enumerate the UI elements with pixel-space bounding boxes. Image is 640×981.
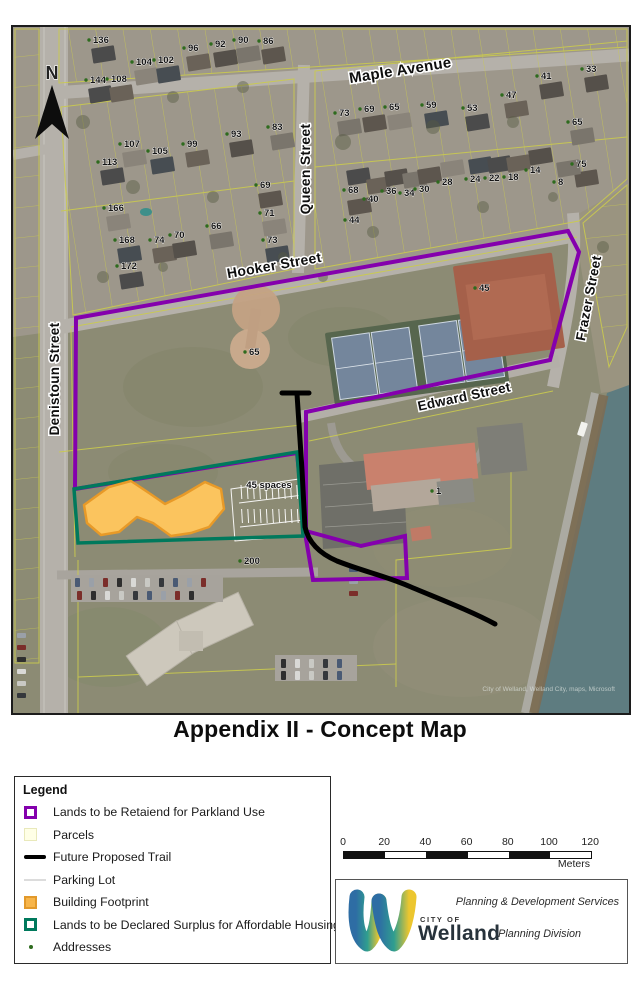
imagery-attribution: City of Welland, Welland City, maps, Mic… bbox=[482, 686, 615, 693]
address-dot bbox=[358, 107, 361, 110]
tree-canopy bbox=[167, 91, 179, 103]
tree-canopy bbox=[477, 201, 489, 213]
address-label: 108 bbox=[111, 74, 127, 85]
address-label: 14 bbox=[530, 165, 541, 176]
address-label: 107 bbox=[124, 139, 140, 150]
address-dot bbox=[570, 162, 573, 165]
tree-canopy bbox=[597, 241, 609, 253]
address-dot bbox=[115, 264, 118, 267]
parked-car bbox=[145, 578, 150, 587]
address-label: 93 bbox=[231, 129, 242, 140]
parked-car bbox=[295, 671, 300, 680]
logo-dept-label: Planning & Development Services bbox=[456, 896, 619, 908]
address-label: 86 bbox=[263, 36, 274, 47]
legend: Legend Lands to be Retaiend for Parkland… bbox=[14, 776, 331, 964]
address-dot bbox=[152, 58, 155, 61]
address-dot bbox=[209, 42, 212, 45]
scale-bar: 0 20 40 60 80 100 120 Meters bbox=[343, 836, 603, 859]
parked-car bbox=[323, 659, 328, 668]
address-label: 65 bbox=[249, 347, 260, 358]
address-label: 65 bbox=[389, 102, 400, 113]
address-label: 65 bbox=[572, 117, 583, 128]
tree-canopy bbox=[367, 226, 379, 238]
address-label: 66 bbox=[211, 221, 222, 232]
address-dot bbox=[258, 211, 261, 214]
parked-car bbox=[281, 671, 286, 680]
legend-item-parcels: Parcels bbox=[23, 824, 322, 847]
tree-canopy bbox=[335, 134, 351, 150]
parked-car bbox=[187, 578, 192, 587]
address-dot bbox=[168, 233, 171, 236]
parked-car bbox=[119, 591, 124, 600]
parkland-swatch bbox=[23, 806, 53, 819]
address-dot bbox=[461, 106, 464, 109]
address-dot bbox=[535, 74, 538, 77]
parked-car bbox=[337, 671, 342, 680]
address-label: 59 bbox=[426, 100, 437, 111]
parked-car bbox=[189, 591, 194, 600]
address-label: 69 bbox=[364, 104, 375, 115]
address-label: 102 bbox=[158, 55, 174, 66]
legend-header: Legend bbox=[23, 783, 322, 797]
address-label: 53 bbox=[467, 103, 478, 114]
tree-canopy bbox=[548, 192, 558, 202]
aerial-map: 45 spaces Maple AvenueQueen StreetHooker… bbox=[13, 27, 629, 713]
address-dot bbox=[254, 183, 257, 186]
address-label: 18 bbox=[508, 172, 519, 183]
address-dot bbox=[118, 142, 121, 145]
parked-car bbox=[17, 693, 26, 698]
tree-canopy bbox=[507, 116, 519, 128]
address-dot bbox=[464, 177, 467, 180]
parked-car bbox=[295, 659, 300, 668]
address-label: 36 bbox=[386, 186, 397, 197]
address-dot bbox=[261, 238, 264, 241]
legend-item-building: Building Footprint bbox=[23, 891, 322, 914]
page-title: Appendix II - Concept Map bbox=[0, 716, 640, 743]
address-label: 113 bbox=[102, 157, 117, 168]
address-label: 90 bbox=[238, 35, 249, 46]
parked-car bbox=[349, 591, 358, 596]
address-dot bbox=[84, 78, 87, 81]
building-swatch bbox=[23, 896, 53, 909]
address-dot bbox=[266, 125, 269, 128]
tree-canopy bbox=[97, 271, 109, 283]
parked-car bbox=[77, 591, 82, 600]
tree-canopy bbox=[426, 120, 440, 134]
surplus-swatch bbox=[23, 918, 53, 931]
address-dot bbox=[580, 67, 583, 70]
page: { "page": { "title": "Appendix II - Conc… bbox=[0, 0, 640, 981]
parked-car bbox=[147, 591, 152, 600]
scale-tick-labels: 0 20 40 60 80 100 120 bbox=[343, 836, 603, 849]
address-label: 1 bbox=[436, 486, 442, 497]
parked-car bbox=[17, 669, 26, 674]
address-label: 144 bbox=[90, 75, 107, 86]
parked-car bbox=[105, 591, 110, 600]
legend-item-addresses: Addresses bbox=[23, 936, 322, 959]
parked-car bbox=[337, 659, 342, 668]
address-dot bbox=[524, 168, 527, 171]
address-dot bbox=[146, 149, 149, 152]
address-dot bbox=[257, 39, 260, 42]
address-dot bbox=[483, 176, 486, 179]
address-dot bbox=[362, 197, 365, 200]
address-label: 47 bbox=[506, 90, 517, 101]
address-dot bbox=[148, 238, 151, 241]
address-label: 33 bbox=[586, 64, 597, 75]
legend-item-surplus: Lands to be Declared Surplus for Afforda… bbox=[23, 914, 322, 937]
address-label: 166 bbox=[108, 203, 124, 214]
tree-canopy bbox=[76, 115, 90, 129]
address-label: 73 bbox=[339, 108, 350, 119]
logo-welland-label: Welland bbox=[418, 922, 500, 946]
address-label: 74 bbox=[154, 235, 165, 246]
parked-car bbox=[17, 681, 26, 686]
trail-swatch bbox=[23, 855, 53, 859]
address-label: 96 bbox=[188, 43, 199, 54]
address-label: 68 bbox=[348, 185, 359, 196]
parked-car bbox=[201, 578, 206, 587]
svg-text:N: N bbox=[46, 63, 59, 83]
parked-car bbox=[17, 645, 26, 650]
address-label: 105 bbox=[152, 146, 169, 157]
parked-car bbox=[117, 578, 122, 587]
parked-car bbox=[103, 578, 108, 587]
parked-car bbox=[309, 659, 314, 668]
legend-item-parking: Parking Lot bbox=[23, 869, 322, 892]
address-dot bbox=[566, 120, 569, 123]
logo-division-label: Planning Division bbox=[498, 928, 581, 940]
address-label: 24 bbox=[470, 174, 481, 185]
street-label: Queen Street bbox=[297, 124, 313, 215]
tree-canopy bbox=[158, 262, 168, 272]
address-dot bbox=[96, 160, 99, 163]
address-dot bbox=[87, 38, 90, 41]
address-dot bbox=[343, 218, 346, 221]
address-label: 8 bbox=[558, 177, 563, 188]
address-label: 136 bbox=[93, 35, 109, 46]
parked-car bbox=[309, 671, 314, 680]
address-dot bbox=[181, 142, 184, 145]
parked-car bbox=[131, 578, 136, 587]
parked-car bbox=[91, 591, 96, 600]
address-dot bbox=[182, 46, 185, 49]
legend-item-parkland: Lands to be Retaiend for Parkland Use bbox=[23, 801, 322, 824]
parked-car bbox=[159, 578, 164, 587]
parked-car bbox=[173, 578, 178, 587]
parked-car bbox=[17, 633, 26, 638]
address-dot bbox=[502, 175, 505, 178]
tree-canopy bbox=[126, 180, 140, 194]
address-label: 41 bbox=[541, 71, 552, 82]
address-dot bbox=[380, 189, 383, 192]
address-dot bbox=[473, 286, 476, 289]
address-label: 70 bbox=[174, 230, 185, 241]
address-label: 44 bbox=[349, 215, 360, 226]
parked-car bbox=[161, 591, 166, 600]
address-dot bbox=[333, 111, 336, 114]
address-dot bbox=[500, 93, 503, 96]
address-dot bbox=[225, 132, 228, 135]
address-label: 30 bbox=[419, 184, 430, 195]
scale-unit-label: Meters bbox=[343, 858, 590, 870]
address-dot bbox=[413, 187, 416, 190]
address-label: 75 bbox=[576, 159, 587, 170]
welland-w-logo-icon bbox=[346, 888, 418, 952]
parked-car bbox=[323, 671, 328, 680]
parcels-swatch bbox=[23, 828, 53, 841]
address-dot bbox=[243, 350, 246, 353]
address-label: 83 bbox=[272, 122, 283, 133]
address-dot bbox=[113, 238, 116, 241]
address-dot bbox=[342, 188, 345, 191]
parked-car bbox=[133, 591, 138, 600]
address-dot bbox=[383, 105, 386, 108]
address-label: 22 bbox=[489, 173, 500, 184]
parked-car bbox=[281, 659, 286, 668]
address-label: 40 bbox=[368, 194, 379, 205]
address-dot bbox=[420, 103, 423, 106]
address-dot bbox=[105, 77, 108, 80]
address-label: 172 bbox=[121, 261, 137, 272]
clay-court bbox=[453, 253, 565, 362]
address-label: 92 bbox=[215, 39, 226, 50]
address-label: 73 bbox=[267, 235, 278, 246]
address-dot bbox=[232, 38, 235, 41]
legend-item-trail: Future Proposed Trail bbox=[23, 846, 322, 869]
parked-car bbox=[175, 591, 180, 600]
address-label: 69 bbox=[260, 180, 271, 191]
address-label: 200 bbox=[244, 556, 260, 567]
address-label: 28 bbox=[442, 177, 453, 188]
address-dot bbox=[205, 224, 208, 227]
address-label: 71 bbox=[264, 208, 275, 219]
addresses-swatch bbox=[23, 945, 53, 949]
street-label: Denistoun Street bbox=[47, 322, 62, 435]
address-label: 168 bbox=[119, 235, 135, 246]
address-label: 99 bbox=[187, 139, 198, 150]
map-frame: 45 spaces Maple AvenueQueen StreetHooker… bbox=[11, 25, 631, 715]
city-logo-box: CITY OF Welland Planning & Development S… bbox=[335, 879, 628, 964]
address-label: 104 bbox=[136, 57, 153, 68]
address-dot bbox=[130, 60, 133, 63]
address-dot bbox=[102, 206, 105, 209]
parked-car bbox=[75, 578, 80, 587]
address-dot bbox=[398, 191, 401, 194]
parking-count-annotation: 45 spaces bbox=[246, 480, 291, 491]
tree-canopy bbox=[237, 81, 249, 93]
address-dot bbox=[436, 180, 439, 183]
parking-swatch bbox=[23, 879, 53, 881]
address-label: 45 bbox=[479, 283, 490, 294]
tree-canopy bbox=[207, 191, 219, 203]
address-dot bbox=[430, 489, 433, 492]
address-dot bbox=[552, 180, 555, 183]
parked-car bbox=[89, 578, 94, 587]
parked-car bbox=[17, 657, 26, 662]
address-dot bbox=[238, 559, 241, 562]
